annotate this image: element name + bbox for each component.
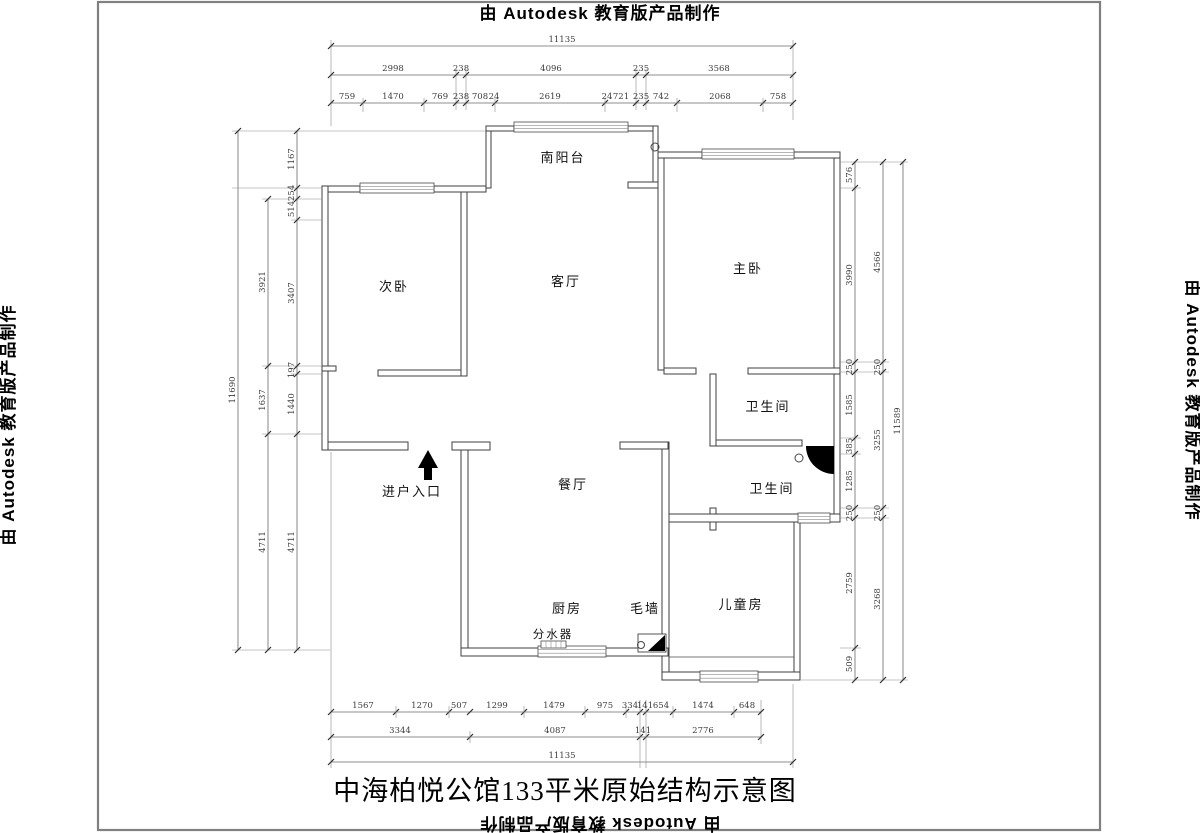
svg-text:2068: 2068	[709, 92, 731, 102]
svg-text:4096: 4096	[540, 64, 562, 74]
svg-text:758: 758	[770, 92, 786, 102]
svg-text:759: 759	[339, 92, 355, 102]
svg-text:1585: 1585	[845, 394, 855, 416]
stamp-bottom: 由 Autodesk 教育版产品制作	[480, 814, 721, 833]
svg-text:24: 24	[602, 92, 613, 102]
svg-text:514: 514	[287, 201, 297, 217]
svg-text:238: 238	[453, 92, 469, 102]
svg-text:3268: 3268	[873, 588, 883, 610]
door-markers	[418, 143, 834, 652]
room-label-bathroom-upper: 卫生间	[745, 399, 790, 414]
svg-text:648: 648	[739, 701, 755, 711]
svg-text:1567: 1567	[352, 701, 374, 711]
svg-text:769: 769	[432, 92, 448, 102]
room-label-second-bedroom: 次卧	[379, 279, 409, 294]
svg-text:1270: 1270	[411, 701, 433, 711]
dim-right-total: 11589	[893, 407, 903, 434]
water-manifold-symbol	[541, 641, 566, 648]
room-label-kitchen: 厨房	[552, 601, 582, 616]
svg-text:2619: 2619	[539, 92, 561, 102]
svg-text:2998: 2998	[382, 64, 404, 74]
svg-text:250: 250	[845, 359, 855, 375]
svg-text:238: 238	[453, 64, 469, 74]
svg-text:250: 250	[873, 359, 883, 375]
svg-text:708: 708	[472, 92, 488, 102]
svg-text:385: 385	[845, 438, 855, 454]
svg-text:1440: 1440	[287, 393, 297, 415]
svg-text:4087: 4087	[544, 726, 566, 736]
svg-text:654: 654	[653, 701, 669, 711]
svg-text:3407: 3407	[287, 282, 297, 304]
svg-text:334: 334	[622, 701, 638, 711]
dim-chain-right: 576 3990 250 1585 385 1285 250 2759 509 …	[800, 159, 908, 683]
svg-text:2759: 2759	[845, 572, 855, 594]
svg-text:235: 235	[633, 92, 649, 102]
svg-text:1285: 1285	[845, 470, 855, 492]
stamp-right: 由 Autodesk 教育版产品制作	[1183, 280, 1200, 521]
room-label-master-bedroom: 主卧	[733, 261, 763, 276]
window-bathroom	[798, 513, 830, 523]
room-label-rough-wall: 毛墙	[630, 601, 660, 616]
svg-text:1470: 1470	[382, 92, 404, 102]
svg-text:3921: 3921	[258, 271, 268, 293]
dim-chain-left: 1167 254 514 3407 197 1440 4711 3921 163…	[228, 128, 486, 653]
svg-text:4711: 4711	[258, 531, 268, 553]
svg-text:1637: 1637	[258, 389, 268, 411]
window-balcony-top	[514, 122, 628, 132]
entrance-arrow-icon	[418, 450, 438, 468]
drawing-sheet: 南阳台 次卧 客厅 主卧 卫生间 卫生间 餐厅 进户入口 厨房 毛墙 儿童房 分…	[0, 0, 1200, 833]
svg-text:235: 235	[633, 64, 649, 74]
window-kids-room	[700, 671, 758, 682]
svg-text:4566: 4566	[873, 251, 883, 273]
entrance-arrow-stem	[424, 468, 432, 480]
room-label-balcony: 南阳台	[540, 150, 585, 165]
svg-text:975: 975	[597, 701, 613, 711]
svg-text:3344: 3344	[389, 726, 411, 736]
svg-text:24: 24	[489, 92, 500, 102]
room-label-entrance: 进户入口	[382, 484, 442, 499]
svg-text:250: 250	[873, 505, 883, 521]
room-label-dining-room: 餐厅	[558, 477, 588, 492]
svg-text:721: 721	[613, 92, 629, 102]
dim-left-total: 11690	[228, 376, 238, 403]
svg-text:250: 250	[845, 505, 855, 521]
svg-text:197: 197	[287, 362, 297, 378]
svg-text:3255: 3255	[873, 429, 883, 451]
svg-text:4711: 4711	[287, 531, 297, 553]
room-label-bathroom-lower: 卫生间	[749, 481, 794, 496]
svg-text:509: 509	[845, 656, 855, 672]
dim-top-total: 11135	[548, 35, 575, 45]
stamp-left: 由 Autodesk 教育版产品制作	[0, 305, 18, 546]
svg-text:576: 576	[845, 167, 855, 183]
room-label-water-manifold: 分水器	[533, 628, 574, 641]
drawing-title: 中海柏悦公馆133平米原始结构示意图	[333, 776, 797, 806]
svg-text:2776: 2776	[692, 726, 714, 736]
svg-text:1299: 1299	[486, 701, 508, 711]
dim-bottom-total: 11135	[548, 751, 575, 761]
window-second-bedroom	[360, 183, 434, 193]
svg-text:141: 141	[637, 701, 653, 711]
svg-text:507: 507	[451, 701, 467, 711]
svg-text:3990: 3990	[845, 264, 855, 286]
svg-text:742: 742	[653, 92, 669, 102]
svg-text:1479: 1479	[543, 701, 565, 711]
window-master-bedroom	[702, 149, 794, 159]
svg-text:1474: 1474	[692, 701, 714, 711]
room-labels: 南阳台 次卧 客厅 主卧 卫生间 卫生间 餐厅 进户入口 厨房 毛墙 儿童房 分…	[379, 150, 795, 641]
stamp-top: 由 Autodesk 教育版产品制作	[480, 3, 721, 23]
svg-text:141: 141	[635, 726, 651, 736]
dim-chain-top: 11135 2998 238 4096 235 3568 759 1470 76…	[328, 35, 796, 126]
floor-plan-canvas: 南阳台 次卧 客厅 主卧 卫生间 卫生间 餐厅 进户入口 厨房 毛墙 儿童房 分…	[0, 0, 1200, 833]
door-swing-icon	[806, 446, 834, 474]
pipe-circle-icon	[795, 454, 803, 462]
svg-text:3568: 3568	[708, 64, 730, 74]
room-label-kids-room: 儿童房	[718, 597, 763, 612]
room-label-living-room: 客厅	[551, 274, 581, 289]
svg-text:1167: 1167	[287, 148, 297, 170]
svg-text:254: 254	[287, 185, 297, 201]
